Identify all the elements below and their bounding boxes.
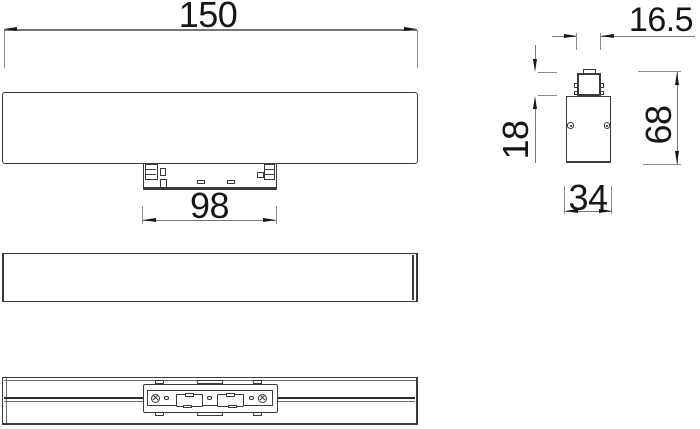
dim-18-arrow-up-icon: [533, 96, 537, 109]
track-slot-line-thin: [4, 401, 143, 402]
front-adapter-left-block-divider: [146, 174, 156, 175]
side-connector-nub: [574, 91, 578, 96]
adapter-bottom-bar: [197, 412, 223, 416]
adapter-slot-nub: [185, 393, 194, 397]
front-body: [2, 92, 418, 164]
dim-68-label: 68: [641, 105, 677, 144]
adapter-slot-nub: [226, 393, 235, 397]
dim-150-arrow-left-icon: [4, 27, 17, 31]
dim-18-label: 18: [498, 120, 534, 159]
track-slot-line-thick: [278, 397, 416, 399]
dim-18-arrow-down-icon: [533, 59, 537, 72]
dim-16-5-label: 16.5: [629, 3, 693, 37]
middle-body: [2, 253, 418, 302]
middle-end-cap-line: [412, 255, 414, 301]
side-body: [566, 96, 611, 164]
side-connector-nub: [574, 83, 578, 88]
side-connector-nub: [600, 83, 604, 88]
side-connector: [577, 73, 601, 96]
side-screw-center: [570, 125, 572, 127]
adapter-tab: [253, 412, 262, 416]
front-adapter-left-notch: [160, 179, 167, 188]
front-adapter-center-dash: [227, 180, 236, 184]
front-adapter-right-block-divider: [265, 169, 274, 170]
dim-18-ext-top: [538, 72, 557, 73]
dim-150-ext-right: [417, 30, 418, 68]
front-adapter-right-square: [257, 172, 264, 179]
front-adapter-right-block: [264, 164, 275, 180]
front-adapter-left-block: [145, 164, 158, 180]
adapter-tab: [155, 412, 164, 416]
dim-68-ext-top: [638, 71, 681, 72]
dim-18-ext-bottom: [538, 95, 557, 96]
dim-150-label: 150: [179, 0, 238, 33]
track-slot-line-thin: [278, 401, 416, 402]
front-adapter-center-dash: [197, 180, 206, 184]
dim-68-ext-bottom: [643, 164, 681, 165]
dim-68-arrow-up-icon: [675, 72, 679, 85]
technical-drawing-canvas: 150 98: [0, 0, 700, 429]
dim-150-ext-left: [4, 30, 5, 68]
dim-98-arrow-left-icon: [143, 218, 156, 222]
dim-16-5-arrow-left-icon: [601, 34, 614, 38]
track-slot-line-thick: [4, 397, 143, 399]
front-adapter-right-block-divider: [265, 174, 274, 175]
adapter-slot-nub: [228, 405, 237, 409]
side-connector-nub: [600, 91, 604, 96]
dim-34-label: 34: [568, 180, 607, 216]
dim-16-5-ext-left: [576, 33, 577, 50]
dim-98-arrow-right-icon: [263, 218, 276, 222]
front-adapter-left-block-divider: [146, 169, 156, 170]
adapter-slot-nub: [183, 405, 192, 409]
dim-98-label: 98: [190, 188, 229, 224]
front-adapter-left-square: [160, 168, 167, 176]
dim-150-arrow-right-icon: [404, 27, 417, 31]
side-screw-center: [606, 125, 608, 127]
dim-16-5-ext-right: [600, 33, 601, 50]
dim-68-arrow-down-icon: [675, 151, 679, 164]
dim-16-5-arrow-right-icon: [564, 34, 577, 38]
